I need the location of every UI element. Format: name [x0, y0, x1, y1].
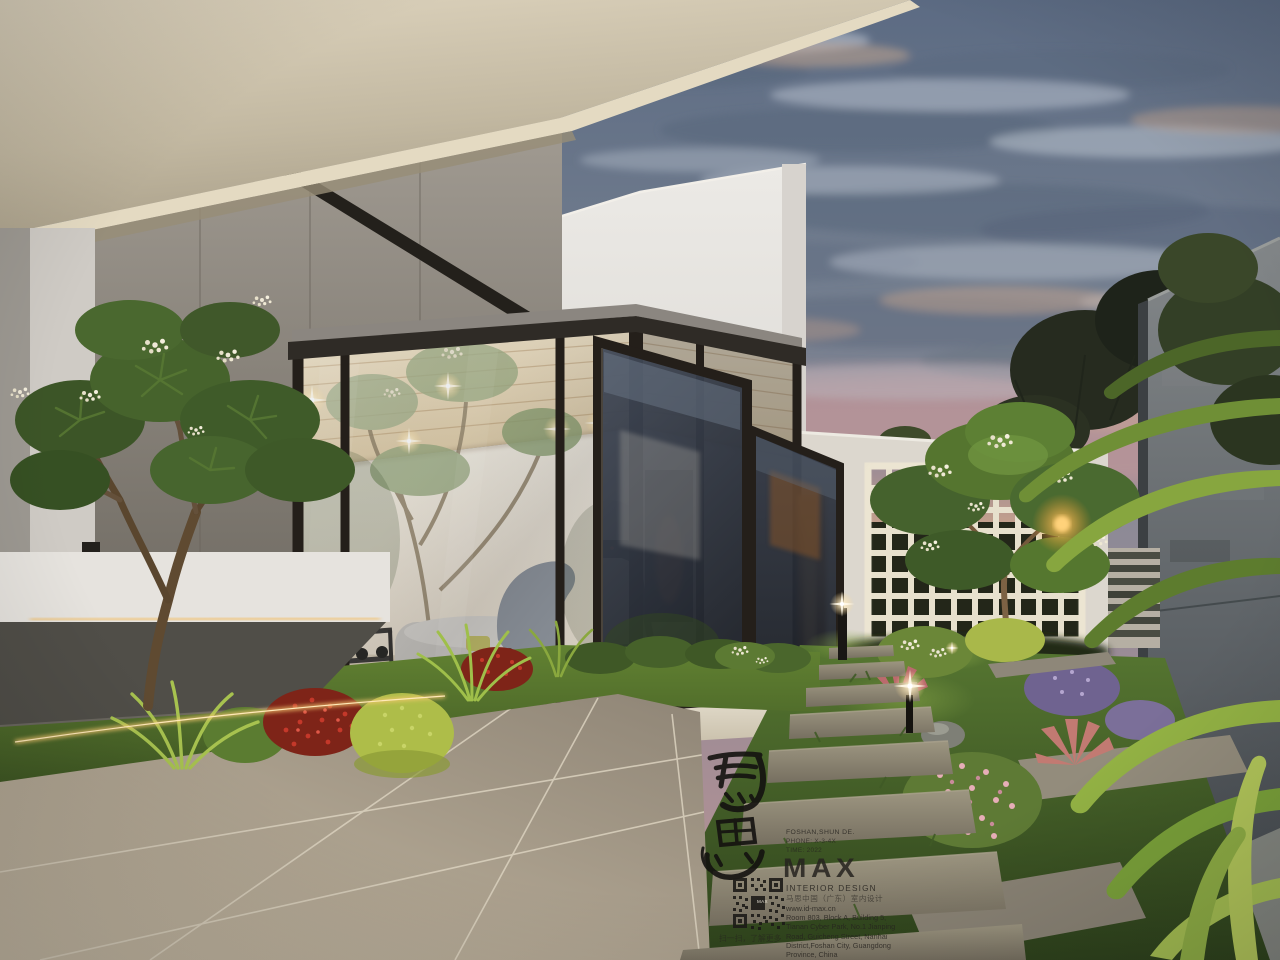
- architectural-rendering: FOSHAN,SHUN DE. PHONE: X-3-4X TIME: 2022…: [0, 0, 1280, 960]
- scene-art: [0, 0, 1280, 960]
- vignette: [0, 0, 1280, 960]
